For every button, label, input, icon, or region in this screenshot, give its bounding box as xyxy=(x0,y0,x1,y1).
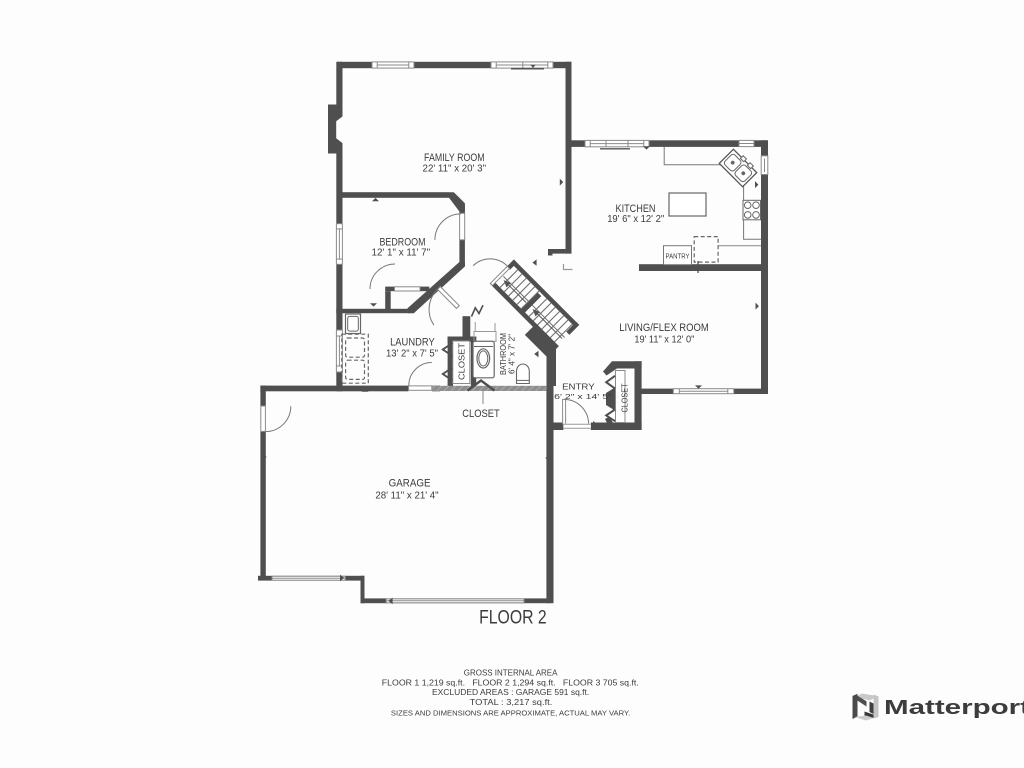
svg-text:GROSS INTERNAL AREA: GROSS INTERNAL AREA xyxy=(464,669,558,678)
svg-text:GARAGE: GARAGE xyxy=(389,478,431,490)
svg-text:13' 2" x 7' 5": 13' 2" x 7' 5" xyxy=(386,349,438,360)
svg-text:SIZES AND DIMENSIONS ARE APPRO: SIZES AND DIMENSIONS ARE APPROXIMATE, AC… xyxy=(391,708,630,717)
svg-text:LIVING/FLEX ROOM: LIVING/FLEX ROOM xyxy=(619,322,709,334)
svg-text:FAMILY ROOM: FAMILY ROOM xyxy=(424,152,485,164)
svg-text:CLOSET: CLOSET xyxy=(462,408,500,420)
svg-text:22' 11" x 20' 3": 22' 11" x 20' 3" xyxy=(423,164,487,175)
svg-text:FLOOR 1 1,219 sq.ft. FLOOR 2: FLOOR 1 1,219 sq.ft. FLOOR 2 1,294 sq.ft… xyxy=(382,679,639,688)
svg-text:12' 1" x 11' 7": 12' 1" x 11' 7" xyxy=(372,247,431,258)
svg-text:28' 11" x 21' 4": 28' 11" x 21' 4" xyxy=(375,490,439,501)
svg-text:19' 6" x 12' 2": 19' 6" x 12' 2" xyxy=(607,214,664,225)
svg-text:CLOSET: CLOSET xyxy=(620,383,629,412)
svg-text:TOTAL : 3,217 sq.ft.: TOTAL : 3,217 sq.ft. xyxy=(470,698,553,707)
svg-text:19' 11" x 12' 0": 19' 11" x 12' 0" xyxy=(634,335,694,346)
svg-text:BATHROOM: BATHROOM xyxy=(498,333,508,375)
svg-text:CLOSET: CLOSET xyxy=(457,343,467,380)
svg-text:6' 2" x 14' 5": 6' 2" x 14' 5" xyxy=(554,392,612,401)
svg-text:Matterport: Matterport xyxy=(884,696,1024,719)
svg-text:PANTRY: PANTRY xyxy=(666,252,690,261)
svg-text:LAUNDRY: LAUNDRY xyxy=(390,337,435,349)
svg-text:ENTRY: ENTRY xyxy=(562,382,595,392)
svg-text:FLOOR 2: FLOOR 2 xyxy=(479,607,547,629)
svg-text:EXCLUDED AREAS : GARAGE 591 s: EXCLUDED AREAS : GARAGE 591 sq.ft. xyxy=(432,688,589,697)
svg-text:6' 4" x 7' 2": 6' 4" x 7' 2" xyxy=(508,334,517,374)
